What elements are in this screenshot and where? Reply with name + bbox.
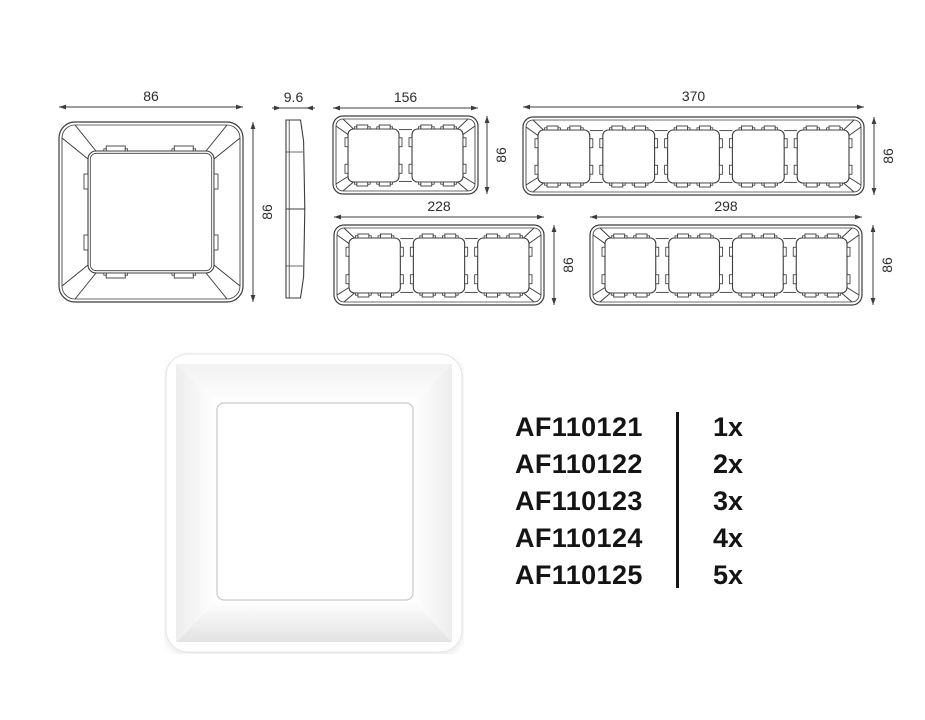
dimension-label: 86 [143,88,159,104]
part-code: AF110125 [515,560,713,591]
parts-list-row: AF1101233x [515,483,743,520]
part-quantity: 1x [713,412,743,443]
dimension-label: 86 [560,257,576,273]
part-code: AF110122 [515,449,713,480]
frame-1-gang-view [59,122,243,302]
frame-opening [217,403,413,600]
part-code: AF110124 [515,523,713,554]
parts-list-row: AF1101244x [515,520,743,557]
part-code: AF110123 [515,486,713,517]
frame-bevel-left-face [176,364,217,642]
parts-list-divider [676,412,679,588]
parts-list-row: AF1101255x [515,557,743,594]
frame-2-gang-view [333,116,478,194]
part-quantity: 5x [713,560,743,591]
parts-list-row: AF1101222x [515,446,743,483]
dimension-label: 228 [427,198,451,214]
technical-drawings: 8686156863708622886298869.6 [0,0,925,335]
frame-bevel-top-face [176,364,452,403]
part-quantity: 3x [713,486,743,517]
dimension-label: 156 [394,89,418,105]
parts-list: AF1101211xAF1101222xAF1101233xAF1101244x… [515,409,743,594]
dimension-label: 86 [493,147,509,163]
dimension-label: 370 [682,88,706,104]
dimension-label: 9.6 [284,89,304,105]
frame-4-gang-view [590,225,862,305]
part-code: AF110121 [515,412,713,443]
dimension-label: 86 [259,204,275,220]
parts-list-row: AF1101211x [515,409,743,446]
part-quantity: 2x [713,449,743,480]
dimension-label: 86 [880,148,896,164]
part-quantity: 4x [713,523,743,554]
frame-3d-render [164,352,464,654]
frame-3-gang-view [334,225,544,305]
frame-bevel-bottom-face [176,600,452,642]
dimension-label: 86 [879,257,895,273]
parts-list-rows: AF1101211xAF1101222xAF1101233xAF1101244x… [515,409,743,594]
frame-bevel-right-face [413,364,452,642]
frame-5-gang-view [523,117,864,195]
dimension-label: 298 [714,198,738,214]
product-sheet: 8686156863708622886298869.6 [0,0,925,720]
side-profile-view [286,120,305,298]
